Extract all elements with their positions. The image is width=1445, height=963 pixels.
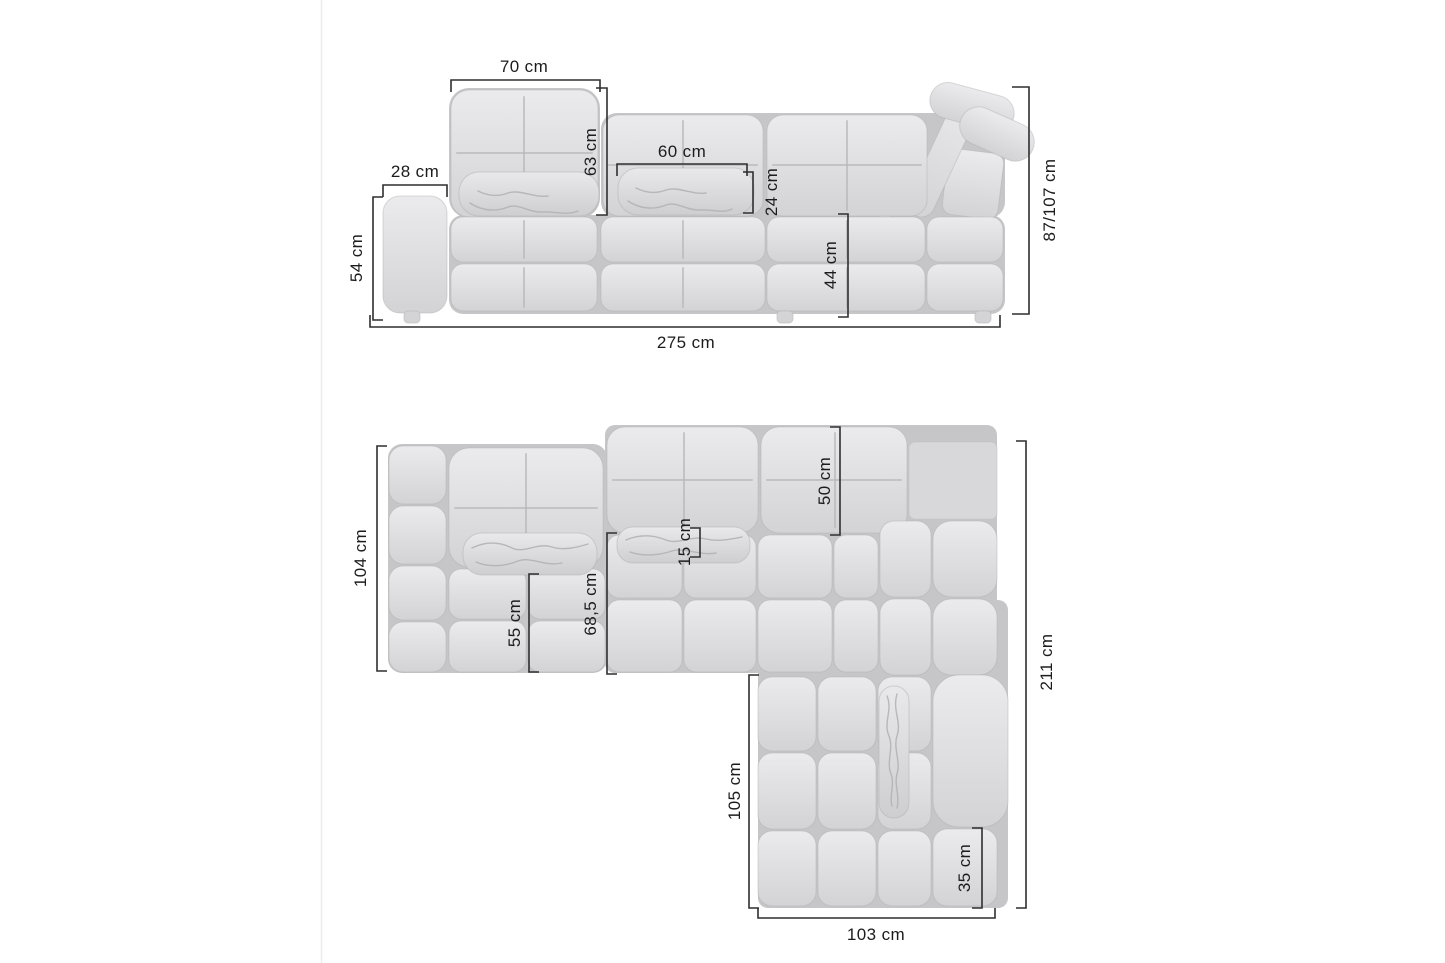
dim-armrest-height-label: 54 cm: [347, 234, 366, 282]
dim-armrest-height-line: [373, 197, 383, 320]
right-backrest-top: [761, 427, 907, 533]
armrest-cushion: [389, 566, 446, 620]
dim-backrest-width: 70 cm: [451, 57, 600, 92]
chaise-armrest: [933, 675, 1008, 827]
pillow: [463, 533, 597, 575]
left-armrest-top: [389, 446, 446, 672]
middle-backrest-top: [607, 427, 758, 533]
dim-left-side-depth: 104 cm: [351, 446, 387, 671]
dim-chaise-length-label: 105 cm: [725, 762, 744, 820]
base-cushion: [927, 264, 1003, 311]
seat-cushion: [607, 600, 682, 672]
seat-row-lower: [451, 264, 1003, 311]
seat-cushion: [758, 600, 832, 672]
dim-pillow-depth-label: 15 cm: [675, 518, 694, 566]
dim-chaise-width-line: [758, 908, 995, 918]
armrest-cushion: [389, 506, 446, 564]
seat-cushion: [758, 831, 816, 906]
seat-cushion: [758, 535, 832, 598]
seat-cushion: [878, 831, 931, 906]
dim-pillow-height-label: 24 cm: [762, 168, 781, 216]
dim-corner-armrest-width-label: 35 cm: [955, 844, 974, 892]
dim-armrest-width-label: 28 cm: [391, 162, 439, 181]
sofa-foot: [404, 311, 420, 323]
dim-backrest-height-label: 63 cm: [581, 128, 600, 176]
dim-total-width-label: 275 cm: [657, 333, 715, 352]
seat-cushion: [880, 599, 931, 675]
chaise-pillow: [879, 686, 909, 818]
dim-seat-depth-label: 55 cm: [505, 599, 524, 647]
sofa-foot: [777, 311, 793, 323]
sofa-foot: [975, 311, 991, 323]
dim-pillow-width-label: 60 cm: [658, 142, 706, 161]
dim-total-depth: 211 cm: [1016, 441, 1056, 908]
dim-backrest-depth-label: 50 cm: [815, 457, 834, 505]
dim-chaise-length: 105 cm: [725, 675, 759, 908]
seat-pillow-middle: [618, 168, 754, 215]
top-sofa: [388, 425, 1008, 908]
dim-armrest-width: 28 cm: [383, 162, 447, 197]
dim-total-depth-label: 211 cm: [1037, 634, 1056, 691]
dim-chaise-width: 103 cm: [758, 908, 995, 944]
dim-armrest-height: 54 cm: [347, 197, 383, 320]
seat-cushion: [818, 831, 876, 906]
dim-backrest-width-label: 70 cm: [500, 57, 548, 76]
armrest-cushion: [389, 622, 446, 672]
seat-cushion: [927, 217, 1003, 262]
product-dimension-diagram: 70 cm 28 cm 63 cm 60 cm 24 cm 54 cm: [0, 0, 1445, 963]
corner-backrest-panel: [909, 442, 997, 519]
dim-left-side-depth-label: 104 cm: [351, 529, 370, 587]
seat-pillow-left: [459, 172, 599, 216]
seat-cushion: [818, 753, 876, 829]
seat-cushion: [758, 753, 816, 829]
seat-cushion: [684, 600, 756, 672]
armrest-cushion: [389, 446, 446, 504]
top-view: 104 cm 50 cm 15 cm 55 cm 68,5 cm 105 cm: [351, 425, 1056, 944]
seat-cushion: [834, 535, 878, 598]
dim-armrest-width-line: [383, 185, 447, 197]
front-view: 70 cm 28 cm 63 cm 60 cm 24 cm 54 cm: [347, 57, 1059, 352]
top-pillow-left: [463, 533, 597, 575]
dim-total-width: 275 cm: [370, 315, 1000, 352]
dim-chaise-width-label: 103 cm: [847, 925, 905, 944]
right-backrest: [767, 115, 927, 216]
dim-seat-height-label: 44 cm: [821, 241, 840, 289]
pillow: [879, 686, 909, 818]
left-armrest: [383, 196, 447, 313]
seat-cushion: [818, 677, 876, 751]
dim-total-depth-line: [1016, 441, 1026, 908]
dim-seat-depth-total-label: 68,5 cm: [581, 572, 600, 635]
seat-cushion: [880, 521, 931, 597]
front-sofa: [383, 78, 1040, 323]
seat-row-upper: [451, 217, 1003, 262]
dim-total-height-label: 87/107 cm: [1040, 159, 1059, 242]
seat-cushion: [933, 599, 997, 675]
dim-left-side-depth-line: [377, 446, 387, 671]
seat-cushion: [834, 600, 878, 672]
dim-total-height: 87/107 cm: [1012, 87, 1059, 314]
dim-total-width-line: [370, 315, 1000, 327]
seat-cushion: [758, 677, 816, 751]
seat-cushion: [933, 521, 997, 597]
